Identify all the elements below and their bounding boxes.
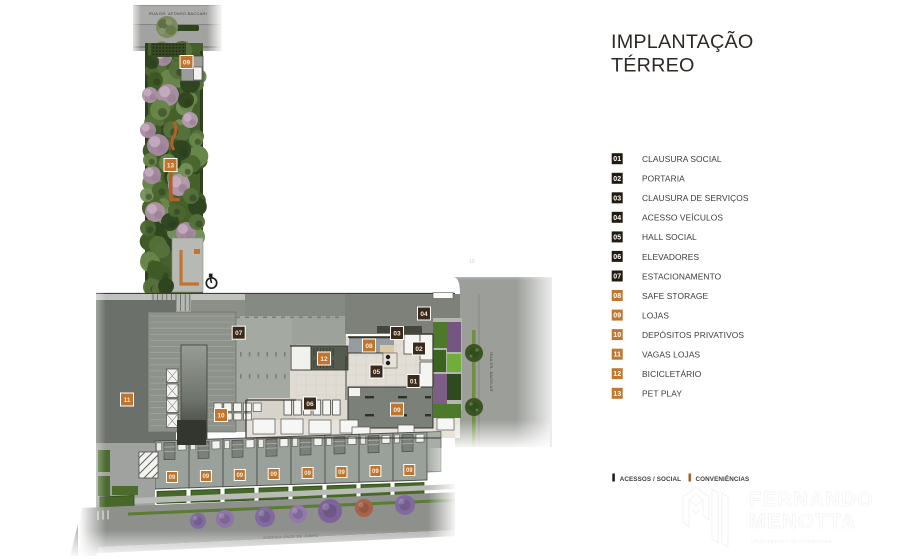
svg-text:13: 13 xyxy=(167,162,175,169)
svg-text:RUA DR. AFONSO BACCARI: RUA DR. AFONSO BACCARI xyxy=(149,11,207,16)
svg-text:10: 10 xyxy=(217,412,225,419)
svg-text:FERNANDO: FERNANDO xyxy=(749,489,874,511)
svg-text:BICICLETÁRIO: BICICLETÁRIO xyxy=(642,369,702,379)
svg-text:01: 01 xyxy=(410,378,418,385)
svg-text:TÉRREO: TÉRREO xyxy=(611,54,695,77)
svg-text:04: 04 xyxy=(613,215,621,222)
svg-text:HALL SOCIAL: HALL SOCIAL xyxy=(642,232,697,242)
svg-text:10: 10 xyxy=(613,332,621,339)
svg-text:DEPÓSITOS PRIVATIVOS: DEPÓSITOS PRIVATIVOS xyxy=(642,330,744,340)
svg-text:CLAUSURA DE SERVIÇOS: CLAUSURA DE SERVIÇOS xyxy=(642,193,749,203)
svg-text:07: 07 xyxy=(613,274,621,281)
svg-text:08: 08 xyxy=(365,343,373,350)
svg-text:CLAUSURA SOCIAL: CLAUSURA SOCIAL xyxy=(642,154,722,164)
svg-text:PET PLAY: PET PLAY xyxy=(642,389,682,399)
svg-text:04: 04 xyxy=(420,311,428,318)
svg-text:ELEVADORES: ELEVADORES xyxy=(642,252,699,262)
svg-text:09: 09 xyxy=(613,313,621,320)
svg-text:11: 11 xyxy=(613,352,621,359)
svg-text:08: 08 xyxy=(613,293,621,300)
svg-text:03: 03 xyxy=(613,195,621,202)
svg-text:PORTARIA: PORTARIA xyxy=(642,174,685,184)
svg-text:09: 09 xyxy=(338,470,345,476)
svg-text:09: 09 xyxy=(203,474,210,480)
svg-text:09: 09 xyxy=(183,59,191,66)
svg-text:CONVENIÊNCIAS: CONVENIÊNCIAS xyxy=(696,474,750,483)
svg-text:01: 01 xyxy=(613,156,621,163)
svg-text:10: 10 xyxy=(469,259,475,265)
svg-text:09: 09 xyxy=(406,468,413,474)
svg-text:ESTACIONAMENTO: ESTACIONAMENTO xyxy=(642,271,722,281)
svg-text:MENOTTA: MENOTTA xyxy=(749,511,857,533)
svg-text:09: 09 xyxy=(270,472,277,478)
svg-text:13: 13 xyxy=(613,391,621,398)
svg-text:IMPLANTAÇÃO: IMPLANTAÇÃO xyxy=(611,29,754,53)
svg-text:07: 07 xyxy=(235,330,243,337)
svg-text:05: 05 xyxy=(613,234,621,241)
svg-text:06: 06 xyxy=(306,401,314,408)
svg-text:LOJAS: LOJAS xyxy=(642,310,669,320)
svg-text:09: 09 xyxy=(236,473,243,479)
svg-text:12: 12 xyxy=(320,356,328,363)
svg-text:02: 02 xyxy=(415,346,423,353)
svg-text:06: 06 xyxy=(613,254,621,261)
svg-text:09: 09 xyxy=(372,469,379,475)
svg-text:SAFE STORAGE: SAFE STORAGE xyxy=(642,291,709,301)
svg-text:09: 09 xyxy=(393,407,401,414)
svg-text:11: 11 xyxy=(124,397,131,404)
svg-text:12: 12 xyxy=(613,371,621,378)
svg-text:ACESSOS / SOCIAL: ACESSOS / SOCIAL xyxy=(620,476,681,483)
svg-text:09: 09 xyxy=(304,471,311,477)
svg-text:02: 02 xyxy=(613,176,621,183)
svg-text:ACESSO VEÍCULOS: ACESSO VEÍCULOS xyxy=(642,213,723,223)
svg-text:VAGAS LOJAS: VAGAS LOJAS xyxy=(642,350,701,360)
svg-text:ARQUITETURA DE INTERIORES: ARQUITETURA DE INTERIORES xyxy=(750,539,832,544)
svg-text:05: 05 xyxy=(373,369,381,376)
svg-text:09: 09 xyxy=(169,475,176,481)
svg-text:RUA DR. BACELAR: RUA DR. BACELAR xyxy=(489,352,494,392)
svg-text:03: 03 xyxy=(393,330,401,337)
